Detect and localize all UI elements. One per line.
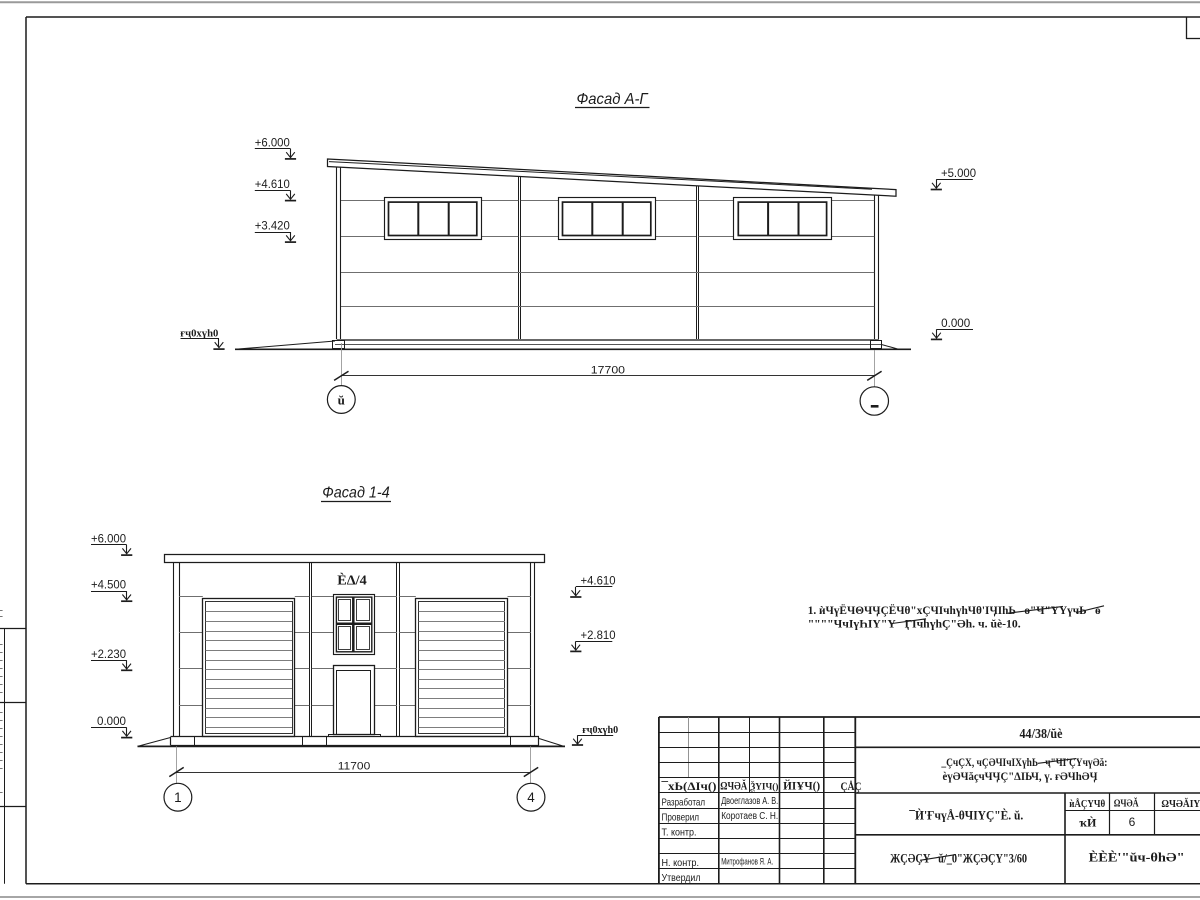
svg-text:Митрофанов Я. А.: Митрофанов Я. А. xyxy=(721,857,773,867)
svg-text:Разработал: Разработал xyxy=(662,796,706,808)
svg-text:+2.230: +2.230 xyxy=(91,649,126,661)
svg-text:+4.500: +4.500 xyxy=(91,580,126,592)
svg-text:ΩЧӘĂ: ΩЧӘĂ xyxy=(720,778,748,792)
svg-text:ΩЧӘĂ: ΩЧӘĂ xyxy=(1114,798,1139,810)
svg-text:11700: 11700 xyxy=(338,761,371,773)
svg-text:1. ѝЧүЁЧΘЧӋÇЁЧθ"хÇЧΙчhүhЧθ'ΙӋΙ: 1. ѝЧүЁЧΘЧӋÇЁЧθ"хÇЧΙчhүhЧθ'ΙӋΙhЬ ѳ"Ч"ΥΥү… xyxy=(808,603,1101,617)
svg-text:ÈÈÈ'"ŭч-θhӘ": ÈÈÈ'"ŭч-θhӘ" xyxy=(1089,851,1185,865)
svg-text:Н. контр.: Н. контр. xyxy=(662,858,700,869)
svg-text:ѝÅÇΥЧθ: ѝÅÇΥЧθ xyxy=(1069,798,1105,810)
svg-text:Фасад А-Г: Фасад А-Г xyxy=(577,91,649,108)
svg-text:¯хЬ(ΔΙч(): ¯хЬ(ΔΙч() xyxy=(660,779,716,793)
svg-text:+4.610: +4.610 xyxy=(581,576,616,588)
svg-text:6: 6 xyxy=(1129,815,1136,829)
svg-text:ÈΔ/4: ÈΔ/4 xyxy=(337,573,367,588)
svg-text:_ÇчÇХ, чÇӘЧΙчΙХүhЬ ҷ"ЧΙ'ÇΥчү: _ÇчÇХ, чÇӘЧΙчΙХүhЬ ҷ"ЧΙ'ÇΥчүӘă: xyxy=(941,755,1108,769)
svg-text:+4.610: +4.610 xyxy=(255,179,290,191)
svg-text:Утвердил: Утвердил xyxy=(662,873,701,884)
svg-text:+3.420: +3.420 xyxy=(255,221,290,233)
svg-text:+6.000: +6.000 xyxy=(91,534,126,546)
svg-text:Т. контр.: Т. контр. xyxy=(662,827,697,838)
svg-text:0.000: 0.000 xyxy=(97,716,126,728)
svg-text:ŭ: ŭ xyxy=(338,393,345,408)
svg-text:+6.000: +6.000 xyxy=(255,137,290,149)
svg-text:¯Ѝ'ҒчүÅ-θЧΙΥÇ"È. ŭ.: ¯Ѝ'ҒчүÅ-θЧΙΥÇ"È. ŭ. xyxy=(908,809,1023,823)
svg-text:44/38/ŭè: 44/38/ŭè xyxy=(1020,726,1063,741)
svg-text:Коротаев С. Н.: Коротаев С. Н. xyxy=(721,811,778,822)
svg-text:4: 4 xyxy=(527,790,535,805)
svg-text:ЖÇӘÇΥ ŭ/_0"ЖÇӘÇΥ"3/60: ЖÇӘÇΥ ŭ/_0"ЖÇӘÇΥ"3/60 xyxy=(890,851,1027,865)
svg-text:Фасад 1-4: Фасад 1-4 xyxy=(322,485,390,502)
svg-text:1: 1 xyxy=(174,790,182,805)
svg-text:+5.000: +5.000 xyxy=(941,168,976,180)
svg-text:ЙΙҰЧ(): ЙΙҰЧ() xyxy=(783,778,820,792)
svg-text:17700: 17700 xyxy=(591,364,625,376)
svg-text:0.000: 0.000 xyxy=(941,318,970,330)
svg-text:+2.810: +2.810 xyxy=(581,630,616,642)
svg-text:ғҷ0хүһ0: ғҷ0хүһ0 xyxy=(180,328,218,339)
svg-text:Двоеглазов А. В.: Двоеглазов А. В. xyxy=(721,796,778,807)
svg-text:ÇÅÇ: ÇÅÇ xyxy=(841,779,862,793)
svg-text:ѐүӘЧăçчЧӋÇ"ΔΙЬЧ, ү. ғӘЧhӘӋ: ѐүӘЧăçчЧӋÇ"ΔΙЬЧ, ү. ғӘЧhӘӋ xyxy=(943,769,1098,783)
svg-text:ҡЍ: ҡЍ xyxy=(1079,815,1096,829)
svg-text:""""ЧчΙүҺΙΥ"Υ ӶΙчhүhÇ"Әh. ч.: """"ЧчΙүҺΙΥ"Υ ӶΙчhүhÇ"Әh. ч. ŭè-10. xyxy=(808,617,1021,631)
svg-text:Проверил: Проверил xyxy=(662,813,700,824)
svg-text:ΩЧӘĂΙΥ(: ΩЧӘĂΙΥ( xyxy=(1161,798,1200,810)
svg-text:ғҷ0хүһ0: ғҷ0хүһ0 xyxy=(582,725,618,736)
